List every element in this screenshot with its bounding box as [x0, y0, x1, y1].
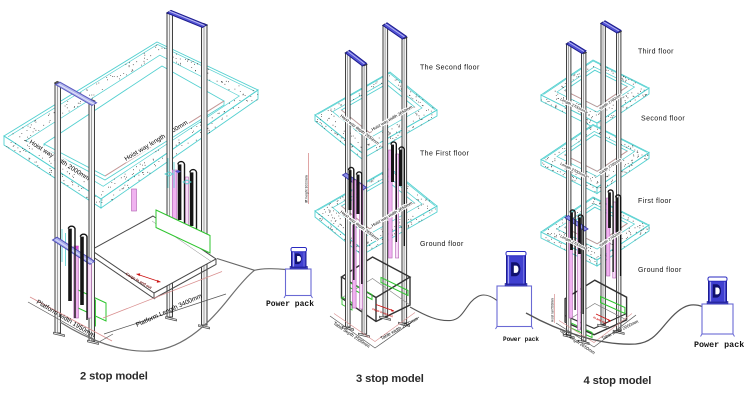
svg-text:The First floor: The First floor: [420, 151, 469, 158]
svg-text:4 stop model: 4 stop model: [584, 375, 652, 387]
svg-text:2 stop model: 2 stop model: [80, 371, 148, 383]
svg-text:Third floor: Third floor: [638, 49, 674, 56]
svg-text:Power pack: Power pack: [266, 300, 314, 309]
svg-text:The Second floor: The Second floor: [420, 65, 480, 72]
svg-text:Hoist rail 500mm: Hoist rail 500mm: [551, 298, 555, 322]
svg-text:Power pack: Power pack: [694, 340, 744, 350]
svg-text:3 stop model: 3 stop model: [356, 373, 424, 385]
svg-text:Second floor: Second floor: [641, 116, 685, 123]
svg-text:Ground floor: Ground floor: [638, 267, 682, 274]
svg-text:Power pack: Power pack: [503, 336, 539, 343]
svg-text:First floor: First floor: [638, 198, 672, 205]
svg-text:lift height 3000mm: lift height 3000mm: [305, 175, 309, 203]
svg-text:Ground floor: Ground floor: [420, 241, 464, 248]
